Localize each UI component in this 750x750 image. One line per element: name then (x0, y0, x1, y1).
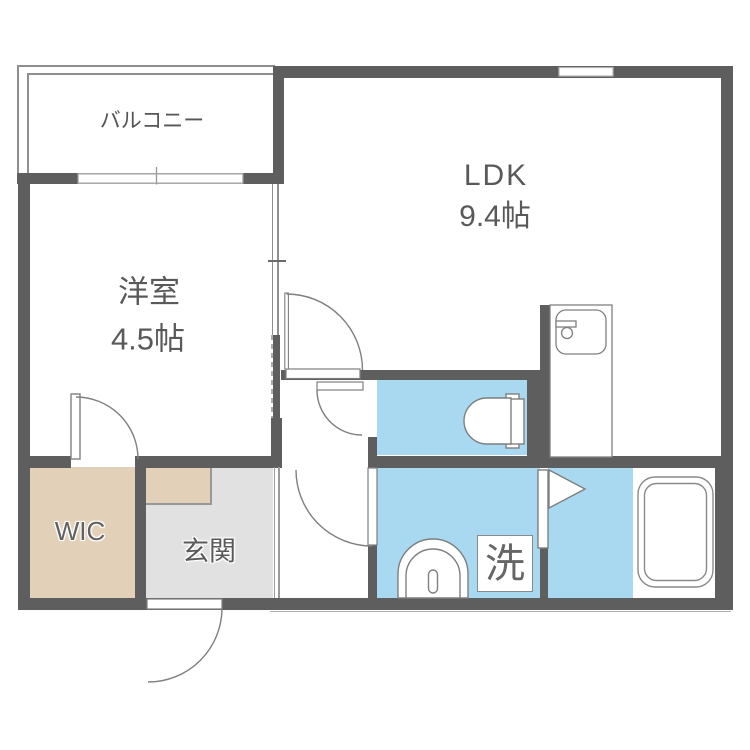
floorplan-canvas: バルコニー LDK 9.4帖 洋室 4.5帖 WIC 玄関 洗 (0, 0, 750, 750)
entrance-label: 玄関 (182, 539, 236, 566)
bath-door (538, 470, 585, 548)
bathtub-icon (638, 477, 713, 587)
toilet-door (317, 382, 363, 435)
entrance-door (147, 599, 222, 682)
washing-machine-space: 洗 (477, 535, 533, 592)
balcony-label: バルコニー (100, 111, 205, 132)
ldk-size-label: 9.4帖 (459, 202, 531, 232)
wic-door (71, 394, 138, 459)
top-wall-notch (559, 68, 613, 77)
bath-door-triangle-icon (549, 470, 585, 508)
laundry-label: 洗 (485, 544, 525, 584)
toilet-icon (464, 394, 524, 448)
western-room-size-label: 4.5帖 (111, 324, 185, 355)
ldk-door (285, 293, 363, 379)
wic-label: WIC (55, 518, 106, 544)
washroom-door (296, 468, 377, 546)
ldk-label: LDK (464, 161, 528, 191)
washbasin-icon (398, 539, 468, 598)
kitchen-sink-icon (550, 305, 612, 457)
balcony-window (78, 167, 243, 185)
western-room-label: 洋室 (118, 277, 180, 308)
